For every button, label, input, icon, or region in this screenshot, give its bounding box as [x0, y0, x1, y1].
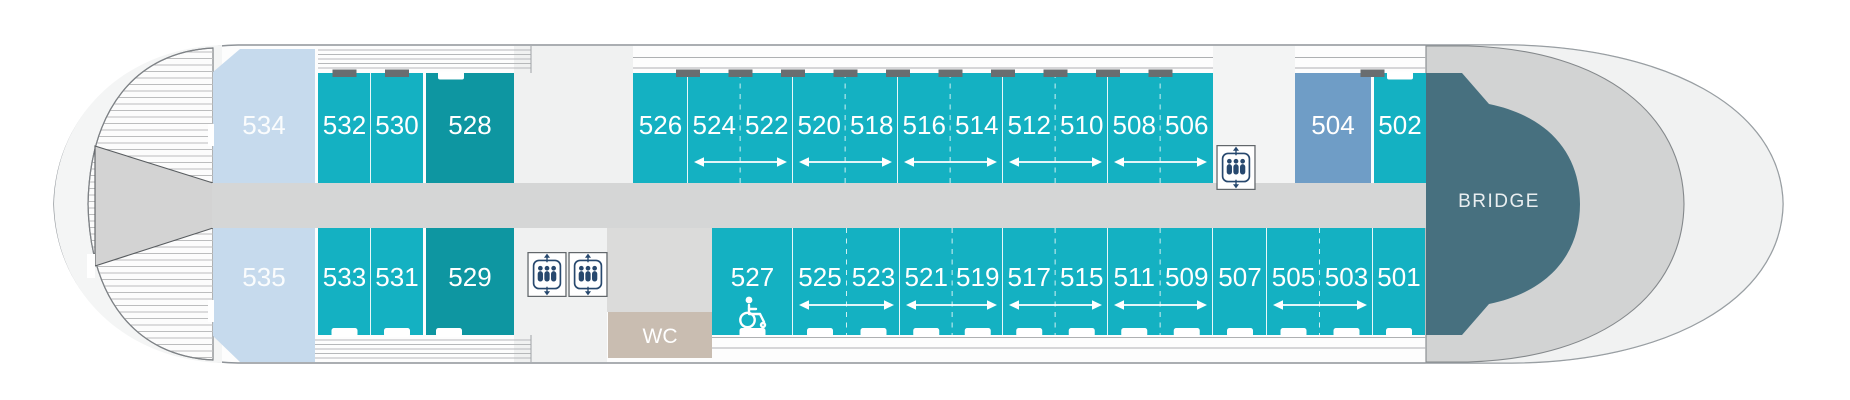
cabin-label-532: 532 [323, 110, 366, 140]
cabin-label-520: 520 [798, 110, 841, 140]
cabin-label-516: 516 [903, 110, 946, 140]
window-notch [939, 70, 963, 78]
cabin-label-509: 509 [1165, 262, 1208, 292]
window-notch [332, 328, 358, 337]
window-notch [1016, 328, 1042, 337]
window-notch [991, 70, 1015, 78]
cabin-label-505: 505 [1272, 262, 1315, 292]
window-notch [1361, 70, 1385, 78]
bridge-label: BRIDGE [1458, 191, 1540, 212]
window-notch [1069, 328, 1095, 337]
window-notch [1386, 328, 1412, 337]
window-notch [385, 70, 409, 78]
window-notch [1121, 328, 1147, 337]
cabin-label-521: 521 [905, 262, 948, 292]
cabin-label-531: 531 [375, 262, 418, 292]
window-notch [861, 328, 887, 337]
cabin-label-523: 523 [852, 262, 895, 292]
window-notch [729, 70, 753, 78]
window-notch [913, 328, 939, 337]
window-notch [781, 70, 805, 78]
window-notch [1174, 328, 1200, 337]
cabin-label-534: 534 [242, 110, 285, 140]
wc-passage [607, 228, 712, 312]
cabin-label-526: 526 [639, 110, 682, 140]
deck-plan-svg: WC 5345325305285265245225205185165145125… [0, 0, 1850, 400]
cabin-label-502: 502 [1378, 110, 1421, 140]
cabin-label-517: 517 [1008, 262, 1051, 292]
window-notch [333, 70, 357, 78]
elevator-icon [528, 253, 566, 297]
elevator-icon [1217, 146, 1255, 190]
cabin-label-527: 527 [731, 262, 774, 292]
cabin-label-514: 514 [955, 110, 998, 140]
cabin-label-529: 529 [448, 262, 491, 292]
window-notch [740, 328, 766, 337]
cabin-label-525: 525 [798, 262, 841, 292]
cabin-label-508: 508 [1113, 110, 1156, 140]
cabin-label-519: 519 [956, 262, 999, 292]
window-notch [1281, 328, 1307, 337]
cabin-label-533: 533 [323, 262, 366, 292]
cabin-label-503: 503 [1325, 262, 1368, 292]
cabin-label-512: 512 [1008, 110, 1051, 140]
window-notch [1044, 70, 1068, 78]
cabin-label-522: 522 [745, 110, 788, 140]
window-notch [807, 328, 833, 337]
wc-label: WC [643, 325, 678, 348]
window-notch [438, 72, 464, 80]
fore-lobby-upper [514, 46, 633, 183]
cabin-label-504: 504 [1311, 110, 1354, 140]
cabin-label-535: 535 [242, 262, 285, 292]
cabin-label-510: 510 [1060, 110, 1103, 140]
cabin-label-530: 530 [375, 110, 418, 140]
cabin-label-506: 506 [1165, 110, 1208, 140]
window-notch [436, 328, 462, 337]
cabin-label-524: 524 [693, 110, 736, 140]
cabin-label-511: 511 [1114, 262, 1155, 292]
window-notch [1387, 72, 1413, 80]
window-notch [886, 70, 910, 78]
window-notch [384, 328, 410, 337]
deck-plan-canvas: WC 5345325305285265245225205185165145125… [0, 0, 1850, 400]
window-notch [834, 70, 858, 78]
window-notch [676, 70, 700, 78]
window-notch [1334, 328, 1360, 337]
window-notch [1149, 70, 1173, 78]
window-notch [965, 328, 991, 337]
cabin-label-501: 501 [1377, 262, 1420, 292]
window-notch [1227, 328, 1253, 337]
cabin-label-518: 518 [850, 110, 893, 140]
cabin-label-515: 515 [1060, 262, 1103, 292]
cabin-535[interactable] [213, 228, 315, 362]
window-notch [1096, 70, 1120, 78]
wc-room: WC [608, 312, 712, 358]
cabin-label-528: 528 [448, 110, 491, 140]
cabin-label-507: 507 [1218, 262, 1261, 292]
elevator-icon [569, 253, 607, 297]
